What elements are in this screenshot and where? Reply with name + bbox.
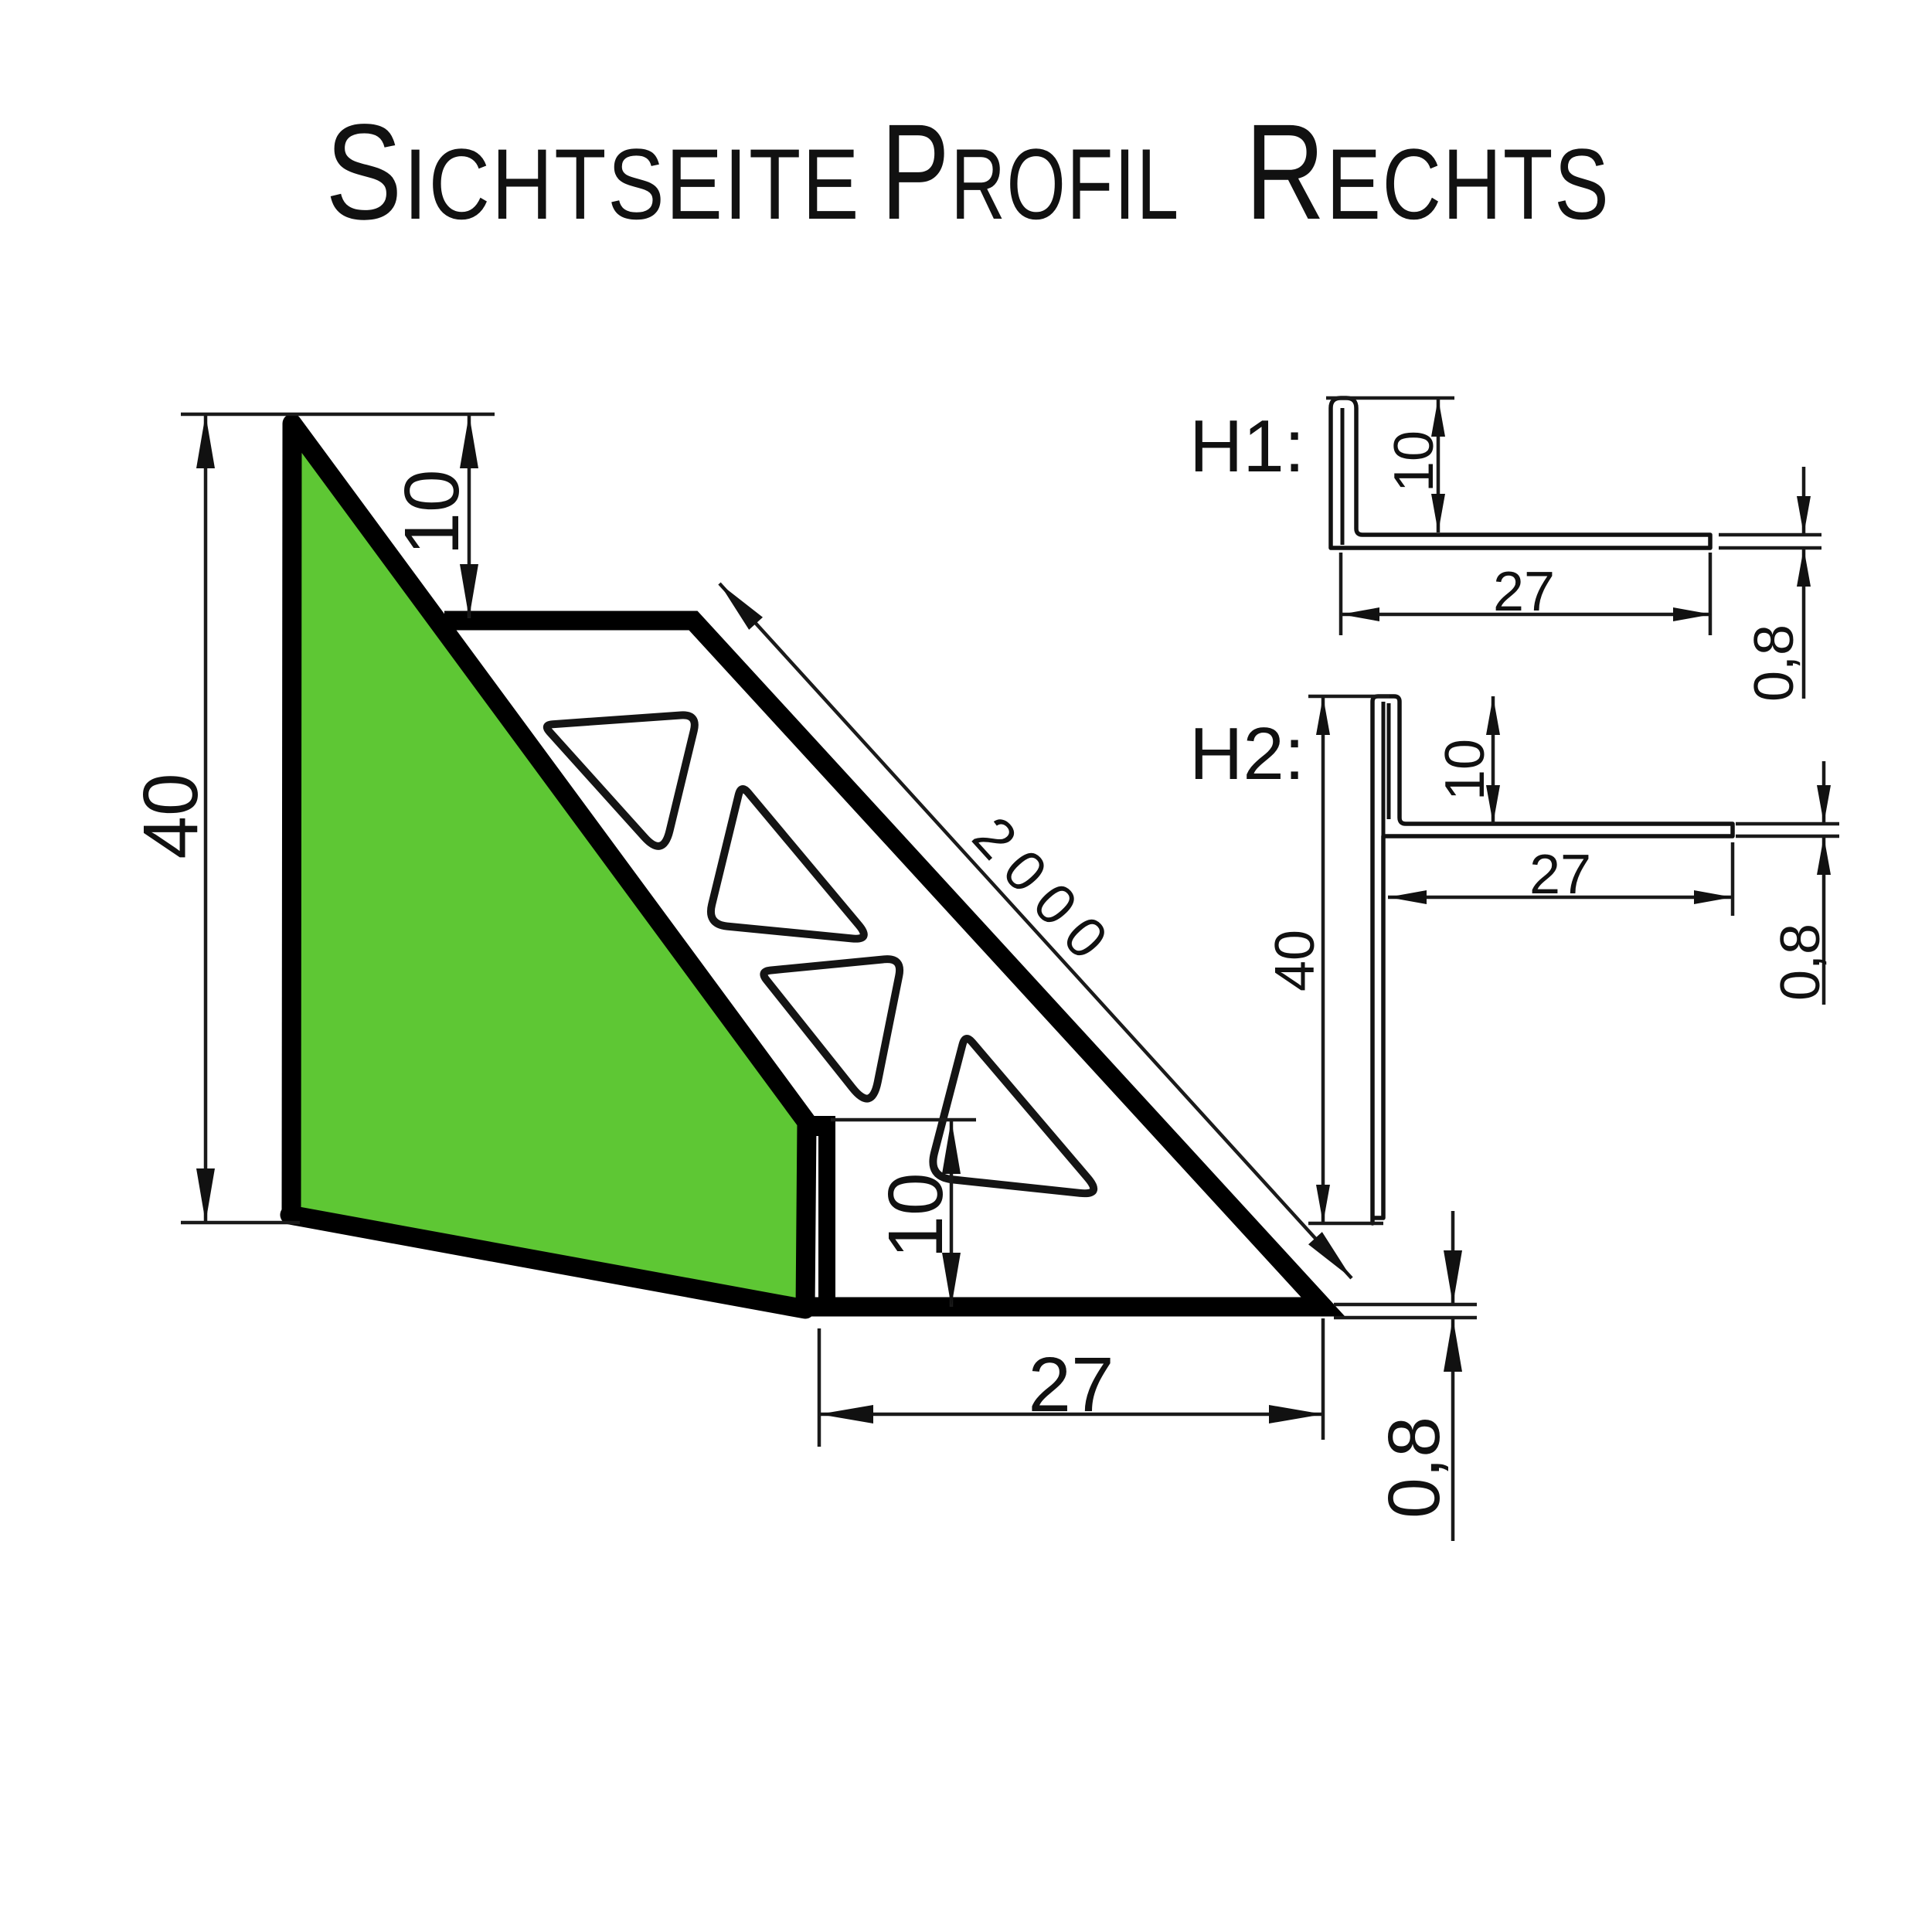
svg-text:10: 10 [1434, 739, 1496, 801]
svg-text:0,8: 0,8 [1373, 1417, 1455, 1519]
svg-text:40: 40 [128, 773, 214, 859]
svg-text:0,8: 0,8 [1743, 624, 1805, 702]
svg-text:H2:: H2: [1189, 713, 1304, 795]
svg-text:10: 10 [1383, 430, 1445, 492]
svg-text:H1:: H1: [1189, 405, 1304, 488]
svg-text:0,8: 0,8 [1770, 923, 1832, 1001]
svg-text:10: 10 [389, 469, 475, 555]
svg-text:40: 40 [1264, 930, 1326, 992]
svg-text:27: 27 [1028, 1342, 1114, 1428]
svg-text:27: 27 [1493, 561, 1555, 623]
svg-text:27: 27 [1529, 844, 1591, 906]
svg-text:10: 10 [872, 1172, 959, 1258]
